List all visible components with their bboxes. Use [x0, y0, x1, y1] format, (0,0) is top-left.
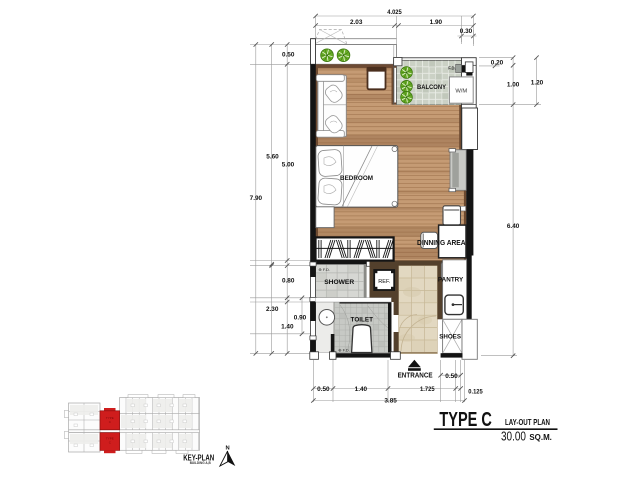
- svg-text:TOILET: TOILET: [351, 317, 374, 324]
- svg-text:0.50: 0.50: [282, 52, 295, 59]
- svg-text:1.20: 1.20: [531, 80, 544, 87]
- svg-text:1.90: 1.90: [430, 19, 443, 26]
- svg-text:30.00: 30.00: [501, 429, 526, 444]
- svg-text:F.D.: F.D.: [448, 65, 455, 70]
- svg-text:4.025: 4.025: [387, 9, 402, 16]
- svg-text:BUILDING A,B: BUILDING A,B: [190, 461, 211, 465]
- svg-text:ENTRANCE: ENTRANCE: [398, 371, 433, 380]
- svg-text:SQ.M.: SQ.M.: [529, 433, 552, 442]
- svg-text:LAY-OUT PLAN: LAY-OUT PLAN: [505, 418, 550, 427]
- svg-text:W/M: W/M: [455, 89, 467, 95]
- svg-text:2.03: 2.03: [350, 19, 363, 26]
- svg-text:5.60: 5.60: [266, 154, 279, 161]
- svg-text:⊕ F.D.: ⊕ F.D.: [338, 348, 350, 353]
- svg-text:0.20: 0.20: [491, 59, 504, 66]
- svg-text:0.125: 0.125: [468, 388, 483, 395]
- svg-text:1.40: 1.40: [355, 386, 368, 393]
- svg-text:1.40: 1.40: [281, 324, 294, 331]
- svg-text:1.725: 1.725: [420, 386, 435, 393]
- svg-text:TYPE C: TYPE C: [439, 408, 492, 431]
- svg-text:0.50: 0.50: [445, 373, 458, 380]
- svg-text:2.30: 2.30: [266, 306, 279, 313]
- svg-text:5.00: 5.00: [282, 162, 295, 169]
- svg-text:0.30: 0.30: [460, 28, 473, 35]
- svg-text:PANTRY: PANTRY: [438, 277, 464, 284]
- svg-text:BALCONY: BALCONY: [417, 84, 447, 91]
- svg-text:REF.: REF.: [378, 279, 391, 285]
- svg-text:BEDROOM: BEDROOM: [340, 175, 373, 182]
- svg-text:0.50: 0.50: [317, 386, 330, 393]
- svg-text:6.40: 6.40: [507, 223, 520, 230]
- svg-text:DINNING AREA: DINNING AREA: [417, 238, 466, 247]
- svg-text:7.90: 7.90: [250, 195, 263, 202]
- svg-text:SHOWER: SHOWER: [324, 279, 354, 286]
- svg-text:1.00: 1.00: [507, 82, 520, 89]
- svg-text:⊕ F.D.: ⊕ F.D.: [318, 267, 330, 272]
- svg-text:SHOES: SHOES: [439, 334, 461, 341]
- svg-text:3.85: 3.85: [384, 397, 397, 404]
- svg-text:0.80: 0.80: [282, 277, 295, 284]
- svg-text:N: N: [226, 446, 230, 452]
- svg-text:0.90: 0.90: [294, 314, 307, 321]
